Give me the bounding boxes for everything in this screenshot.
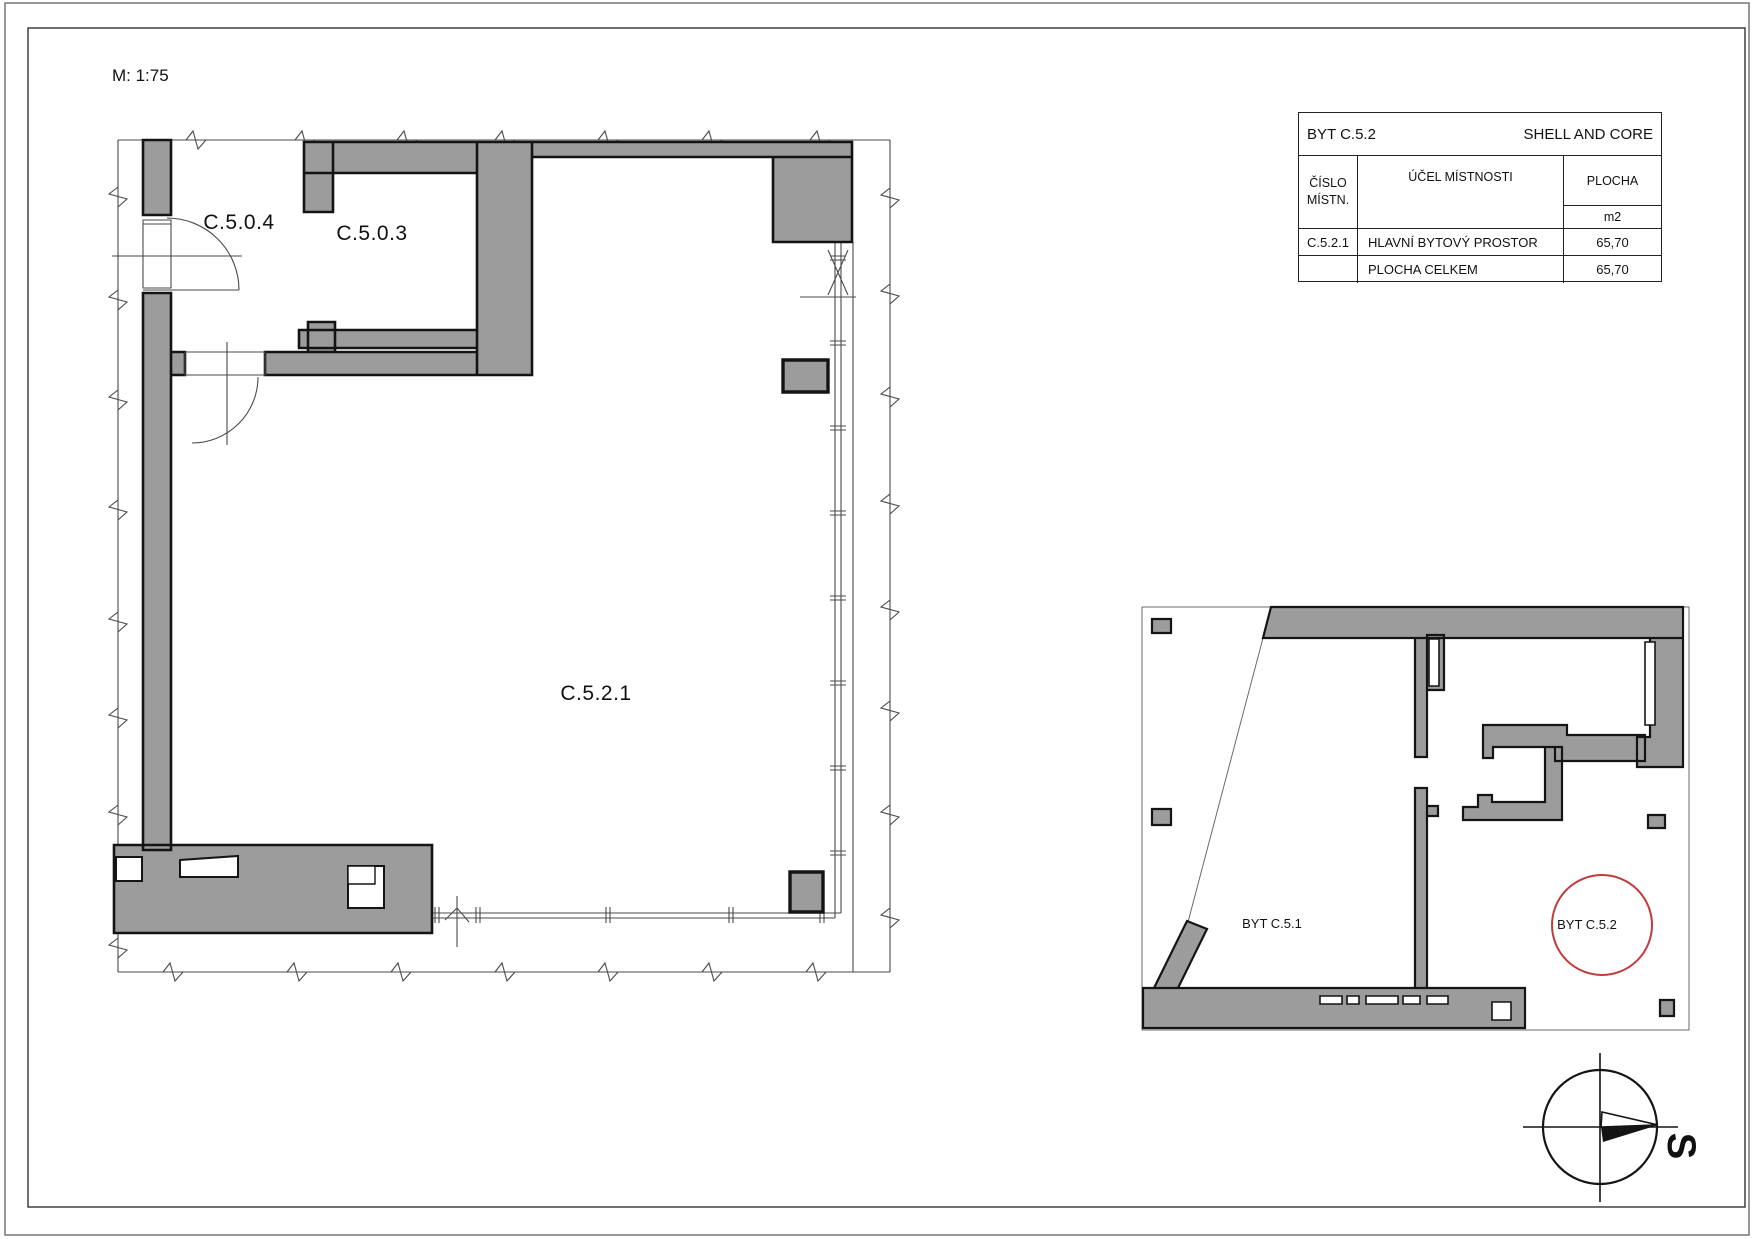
col-header-purpose-text: ÚČEL MÍSTNOSTI (1408, 170, 1512, 184)
room-table-header: BYT C.5.2 SHELL AND CORE (1299, 113, 1661, 156)
table-title-unit: BYT C.5.2 (1307, 126, 1376, 143)
column-blocks (783, 360, 828, 912)
table-total-row: PLOCHA CELKEM 65,70 (1299, 256, 1661, 283)
key-label-byt-c52: BYT C.5.2 (1557, 917, 1617, 932)
main-floor-plan: C.5.0.4 C.5.0.3 C.5.2.1 (109, 131, 899, 981)
table-row: C.5.2.1 HLAVNÍ BYTOVÝ PROSTOR 65,70 (1299, 229, 1661, 256)
col-header-purpose: ÚČEL MÍSTNOSTI (1358, 156, 1564, 228)
key-label-byt-c51: BYT C.5.1 (1242, 916, 1302, 931)
col-header-area-unit: m2 (1564, 206, 1661, 228)
key-plan: BYT C.5.1 BYT C.5.2 (1142, 607, 1689, 1030)
north-compass: S (1523, 1053, 1703, 1202)
fixture-box-inner (348, 866, 375, 884)
total-label: PLOCHA CELKEM (1358, 256, 1564, 283)
col-header-area: PLOCHA m2 (1564, 156, 1661, 228)
row-number: C.5.2.1 (1299, 229, 1358, 255)
door-symbols (112, 218, 265, 445)
fixture-notch (116, 857, 142, 881)
room-table: BYT C.5.2 SHELL AND CORE ČÍSLO MÍSTN. ÚČ… (1298, 112, 1662, 282)
wall-segments (114, 140, 852, 933)
north-arrow-filled-half (1601, 1125, 1658, 1142)
room-table-column-headers: ČÍSLO MÍSTN. ÚČEL MÍSTNOSTI PLOCHA m2 (1299, 156, 1661, 229)
room-label-c504: C.5.0.4 (203, 211, 274, 234)
room-label-c503: C.5.0.3 (336, 222, 407, 245)
key-wall-segments (1143, 607, 1683, 1028)
col-header-number-line1: ČÍSLO (1309, 175, 1347, 192)
key-plan-diagonal-line (1188, 638, 1263, 922)
scale-label: M: 1:75 (112, 66, 169, 86)
total-number-empty (1299, 256, 1358, 283)
key-plan-walls (1143, 607, 1683, 1028)
key-window-slots (1320, 639, 1655, 1020)
row-area: 65,70 (1564, 229, 1661, 255)
north-letter: S (1659, 1133, 1703, 1160)
walls-layer (114, 140, 852, 933)
total-area: 65,70 (1564, 256, 1661, 283)
col-header-area-title: PLOCHA (1564, 156, 1661, 206)
north-arrow-outline-half (1601, 1112, 1658, 1127)
col-header-number-line2: MÍSTN. (1307, 192, 1349, 209)
room-label-c521: C.5.2.1 (560, 682, 631, 705)
fixture-tray (180, 856, 238, 877)
row-purpose: HLAVNÍ BYTOVÝ PROSTOR (1358, 229, 1564, 255)
col-header-number: ČÍSLO MÍSTN. (1299, 156, 1358, 228)
table-title-stage: SHELL AND CORE (1524, 126, 1654, 143)
